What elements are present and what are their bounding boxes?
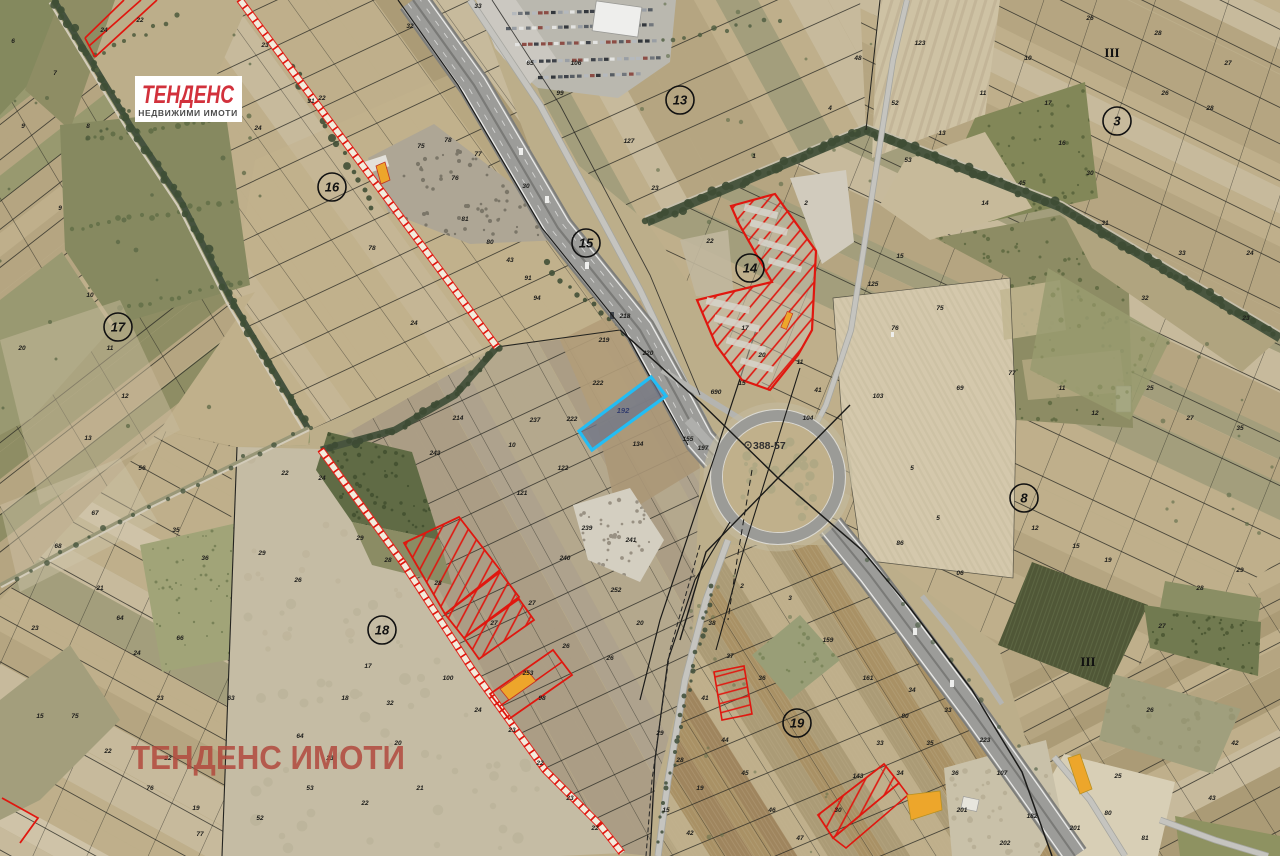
svg-text:6: 6 bbox=[11, 38, 15, 45]
svg-text:18: 18 bbox=[375, 623, 390, 638]
svg-text:16: 16 bbox=[1058, 140, 1066, 147]
svg-text:237: 237 bbox=[529, 417, 541, 424]
svg-text:24: 24 bbox=[1245, 250, 1254, 257]
svg-text:26: 26 bbox=[1145, 707, 1154, 714]
svg-text:13: 13 bbox=[673, 93, 688, 108]
svg-text:28: 28 bbox=[1205, 105, 1214, 112]
svg-text:52: 52 bbox=[891, 100, 899, 107]
svg-text:252: 252 bbox=[610, 587, 622, 594]
svg-text:11: 11 bbox=[1059, 385, 1066, 392]
svg-text:23: 23 bbox=[507, 727, 516, 734]
svg-text:7: 7 bbox=[53, 70, 57, 77]
svg-text:20: 20 bbox=[757, 352, 766, 359]
svg-text:III: III bbox=[1104, 45, 1119, 60]
svg-text:27: 27 bbox=[489, 620, 498, 627]
svg-text:38: 38 bbox=[708, 620, 716, 627]
svg-text:107: 107 bbox=[997, 770, 1008, 777]
svg-text:22: 22 bbox=[317, 95, 326, 102]
svg-text:123: 123 bbox=[915, 40, 926, 47]
svg-text:9: 9 bbox=[58, 205, 62, 212]
svg-text:159: 159 bbox=[823, 637, 834, 644]
svg-text:26: 26 bbox=[605, 655, 614, 662]
svg-text:63: 63 bbox=[227, 695, 235, 702]
svg-text:15: 15 bbox=[1072, 543, 1080, 550]
svg-text:15: 15 bbox=[738, 380, 746, 387]
svg-text:99: 99 bbox=[556, 90, 564, 97]
svg-text:3: 3 bbox=[1113, 114, 1121, 129]
svg-text:5: 5 bbox=[936, 515, 940, 522]
svg-text:42: 42 bbox=[1230, 740, 1239, 747]
svg-text:75: 75 bbox=[71, 713, 79, 720]
svg-text:14: 14 bbox=[981, 200, 989, 207]
svg-text:25: 25 bbox=[1145, 385, 1154, 392]
svg-text:28: 28 bbox=[433, 580, 442, 587]
svg-text:11: 11 bbox=[980, 90, 987, 97]
svg-text:100: 100 bbox=[443, 675, 454, 682]
svg-text:45: 45 bbox=[1017, 180, 1026, 187]
svg-text:26: 26 bbox=[1160, 90, 1169, 97]
svg-text:78: 78 bbox=[368, 245, 376, 252]
svg-text:690: 690 bbox=[711, 389, 722, 396]
svg-text:15: 15 bbox=[896, 253, 904, 260]
svg-text:35: 35 bbox=[1236, 425, 1244, 432]
svg-text:18: 18 bbox=[341, 695, 349, 702]
svg-text:106: 106 bbox=[571, 60, 582, 67]
svg-text:29: 29 bbox=[355, 535, 364, 542]
svg-text:10: 10 bbox=[86, 292, 94, 299]
svg-text:12: 12 bbox=[1091, 410, 1099, 417]
svg-text:143: 143 bbox=[853, 773, 864, 780]
svg-text:30: 30 bbox=[834, 807, 842, 814]
svg-text:52: 52 bbox=[256, 815, 264, 822]
svg-text:9: 9 bbox=[21, 123, 25, 130]
svg-text:21: 21 bbox=[415, 785, 424, 792]
svg-text:81: 81 bbox=[461, 216, 469, 223]
svg-text:76: 76 bbox=[451, 175, 459, 182]
svg-text:22: 22 bbox=[360, 800, 369, 807]
svg-text:36: 36 bbox=[951, 770, 959, 777]
svg-text:192: 192 bbox=[617, 406, 630, 415]
svg-text:15: 15 bbox=[662, 807, 670, 814]
svg-text:222: 222 bbox=[592, 380, 604, 387]
svg-text:14: 14 bbox=[743, 261, 758, 276]
svg-text:222: 222 bbox=[566, 416, 578, 423]
svg-text:21: 21 bbox=[95, 585, 104, 592]
svg-text:23: 23 bbox=[260, 42, 269, 49]
svg-text:НЕДВИЖИМИ ИМОТИ: НЕДВИЖИМИ ИМОТИ bbox=[138, 108, 238, 118]
svg-text:31: 31 bbox=[1101, 220, 1109, 227]
svg-text:122: 122 bbox=[558, 465, 569, 472]
svg-text:24: 24 bbox=[317, 475, 326, 482]
svg-text:25: 25 bbox=[1113, 773, 1122, 780]
svg-text:20: 20 bbox=[17, 345, 26, 352]
svg-text:201: 201 bbox=[956, 807, 968, 814]
svg-text:161: 161 bbox=[863, 675, 874, 682]
svg-text:17: 17 bbox=[364, 663, 372, 670]
svg-text:3: 3 bbox=[788, 595, 792, 602]
svg-text:388-57: 388-57 bbox=[753, 440, 786, 452]
svg-text:19: 19 bbox=[790, 716, 805, 731]
svg-text:64: 64 bbox=[116, 615, 124, 622]
svg-text:44: 44 bbox=[720, 737, 729, 744]
svg-text:23: 23 bbox=[1241, 315, 1250, 322]
svg-text:243: 243 bbox=[429, 450, 441, 457]
svg-text:253: 253 bbox=[522, 670, 534, 677]
svg-text:06: 06 bbox=[956, 570, 964, 577]
svg-text:19: 19 bbox=[696, 785, 704, 792]
svg-text:36: 36 bbox=[758, 675, 766, 682]
svg-text:2: 2 bbox=[803, 200, 808, 207]
svg-text:36: 36 bbox=[201, 555, 209, 562]
svg-text:24: 24 bbox=[473, 707, 482, 714]
svg-text:35: 35 bbox=[172, 527, 180, 534]
svg-text:22: 22 bbox=[590, 825, 599, 832]
svg-text:29: 29 bbox=[655, 730, 664, 737]
svg-text:47: 47 bbox=[795, 835, 804, 842]
svg-text:ТЕНДЕНС: ТЕНДЕНС bbox=[142, 81, 235, 109]
svg-text:77: 77 bbox=[196, 831, 204, 838]
svg-text:239: 239 bbox=[581, 525, 593, 532]
svg-text:24: 24 bbox=[99, 27, 108, 34]
svg-text:69: 69 bbox=[956, 385, 964, 392]
svg-text:42: 42 bbox=[685, 830, 694, 837]
svg-text:13: 13 bbox=[938, 130, 946, 137]
svg-text:16: 16 bbox=[325, 180, 340, 195]
svg-text:17: 17 bbox=[1044, 100, 1052, 107]
svg-text:26: 26 bbox=[1085, 15, 1094, 22]
svg-text:27: 27 bbox=[1157, 623, 1166, 630]
svg-text:202: 202 bbox=[999, 840, 1011, 847]
svg-text:182: 182 bbox=[1027, 813, 1038, 820]
svg-text:28: 28 bbox=[1195, 585, 1204, 592]
svg-text:22: 22 bbox=[535, 760, 544, 767]
svg-text:127: 127 bbox=[624, 138, 635, 145]
svg-text:78: 78 bbox=[444, 137, 452, 144]
svg-text:34: 34 bbox=[896, 770, 904, 777]
svg-text:19: 19 bbox=[192, 805, 200, 812]
svg-text:46: 46 bbox=[767, 807, 776, 814]
svg-text:48: 48 bbox=[853, 55, 862, 62]
svg-text:31: 31 bbox=[307, 98, 315, 105]
svg-text:80: 80 bbox=[901, 713, 909, 720]
svg-text:80: 80 bbox=[486, 239, 494, 246]
svg-text:22: 22 bbox=[103, 748, 112, 755]
svg-text:68: 68 bbox=[54, 543, 62, 550]
svg-text:76: 76 bbox=[146, 785, 154, 792]
svg-text:12: 12 bbox=[1031, 525, 1039, 532]
svg-text:15: 15 bbox=[36, 713, 44, 720]
svg-text:12: 12 bbox=[121, 393, 129, 400]
svg-text:29: 29 bbox=[257, 550, 266, 557]
svg-text:43: 43 bbox=[505, 257, 514, 264]
svg-text:77: 77 bbox=[474, 151, 482, 158]
svg-text:13: 13 bbox=[84, 435, 92, 442]
svg-text:134: 134 bbox=[633, 441, 644, 448]
svg-text:197: 197 bbox=[698, 445, 709, 452]
svg-text:218: 218 bbox=[619, 313, 631, 320]
svg-text:121: 121 bbox=[517, 490, 528, 497]
svg-text:4: 4 bbox=[827, 105, 832, 112]
svg-text:41: 41 bbox=[813, 387, 822, 394]
svg-text:26: 26 bbox=[561, 643, 570, 650]
svg-text:56: 56 bbox=[138, 465, 146, 472]
svg-text:220: 220 bbox=[642, 350, 654, 357]
svg-text:15: 15 bbox=[579, 236, 594, 251]
svg-text:241: 241 bbox=[625, 537, 637, 544]
svg-text:53: 53 bbox=[904, 157, 912, 164]
svg-text:155: 155 bbox=[683, 436, 694, 443]
svg-text:III: III bbox=[1080, 654, 1095, 669]
svg-text:23: 23 bbox=[650, 185, 659, 192]
svg-text:29: 29 bbox=[1235, 567, 1244, 574]
svg-text:8: 8 bbox=[1020, 491, 1028, 506]
svg-text:23: 23 bbox=[155, 695, 164, 702]
svg-text:66: 66 bbox=[176, 635, 184, 642]
svg-text:33: 33 bbox=[474, 3, 482, 10]
svg-text:10: 10 bbox=[1024, 55, 1032, 62]
svg-text:17: 17 bbox=[741, 325, 749, 332]
svg-text:43: 43 bbox=[1207, 795, 1216, 802]
svg-text:125: 125 bbox=[868, 281, 879, 288]
svg-text:20: 20 bbox=[635, 620, 644, 627]
svg-text:219: 219 bbox=[598, 337, 610, 344]
svg-text:ТЕНДЕНС ИМОТИ: ТЕНДЕНС ИМОТИ bbox=[131, 739, 405, 776]
svg-text:33: 33 bbox=[1178, 250, 1186, 257]
svg-text:19: 19 bbox=[1104, 557, 1112, 564]
svg-text:214: 214 bbox=[452, 415, 464, 422]
svg-text:2: 2 bbox=[739, 583, 744, 590]
svg-text:34: 34 bbox=[908, 687, 916, 694]
svg-text:10: 10 bbox=[508, 442, 516, 449]
svg-text:35: 35 bbox=[926, 740, 934, 747]
svg-text:94: 94 bbox=[533, 295, 541, 302]
svg-text:27: 27 bbox=[527, 600, 536, 607]
svg-text:8: 8 bbox=[86, 123, 90, 130]
svg-text:37: 37 bbox=[726, 653, 734, 660]
svg-text:32: 32 bbox=[386, 700, 394, 707]
svg-text:45: 45 bbox=[740, 770, 749, 777]
svg-text:23: 23 bbox=[30, 625, 39, 632]
svg-text:91: 91 bbox=[524, 275, 532, 282]
svg-text:23: 23 bbox=[565, 795, 574, 802]
svg-text:81: 81 bbox=[1141, 835, 1149, 842]
svg-text:32: 32 bbox=[406, 23, 414, 30]
svg-text:77: 77 bbox=[1008, 370, 1016, 377]
svg-text:75: 75 bbox=[936, 305, 944, 312]
svg-text:33: 33 bbox=[944, 707, 952, 714]
svg-text:22: 22 bbox=[280, 470, 289, 477]
svg-text:103: 103 bbox=[873, 393, 884, 400]
svg-text:28: 28 bbox=[1153, 30, 1162, 37]
svg-text:223: 223 bbox=[979, 737, 991, 744]
svg-text:28: 28 bbox=[383, 557, 392, 564]
svg-text:30: 30 bbox=[522, 183, 530, 190]
svg-text:76: 76 bbox=[891, 325, 899, 332]
svg-text:41: 41 bbox=[700, 695, 709, 702]
svg-text:98: 98 bbox=[538, 695, 546, 702]
svg-text:24: 24 bbox=[132, 650, 141, 657]
svg-text:26: 26 bbox=[293, 577, 302, 584]
svg-text:11: 11 bbox=[797, 359, 804, 366]
svg-text:24: 24 bbox=[253, 125, 262, 132]
svg-text:1: 1 bbox=[752, 153, 756, 160]
svg-text:30: 30 bbox=[1086, 170, 1094, 177]
svg-text:33: 33 bbox=[876, 740, 884, 747]
svg-text:32: 32 bbox=[1141, 295, 1149, 302]
svg-text:80: 80 bbox=[1104, 810, 1112, 817]
svg-text:104: 104 bbox=[803, 415, 814, 422]
svg-text:67: 67 bbox=[91, 510, 99, 517]
svg-text:27: 27 bbox=[1223, 60, 1232, 67]
svg-text:28: 28 bbox=[675, 757, 684, 764]
svg-text:27: 27 bbox=[1185, 415, 1194, 422]
svg-text:240: 240 bbox=[559, 555, 571, 562]
svg-text:22: 22 bbox=[705, 238, 714, 245]
svg-text:17: 17 bbox=[111, 320, 126, 335]
svg-text:65: 65 bbox=[526, 60, 534, 67]
svg-text:53: 53 bbox=[306, 785, 314, 792]
svg-text:201: 201 bbox=[1069, 825, 1081, 832]
svg-text:24: 24 bbox=[409, 320, 418, 327]
svg-text:86: 86 bbox=[896, 540, 904, 547]
svg-text:22: 22 bbox=[135, 17, 144, 24]
svg-text:11: 11 bbox=[107, 345, 114, 352]
svg-text:75: 75 bbox=[417, 143, 425, 150]
svg-text:5: 5 bbox=[910, 465, 914, 472]
